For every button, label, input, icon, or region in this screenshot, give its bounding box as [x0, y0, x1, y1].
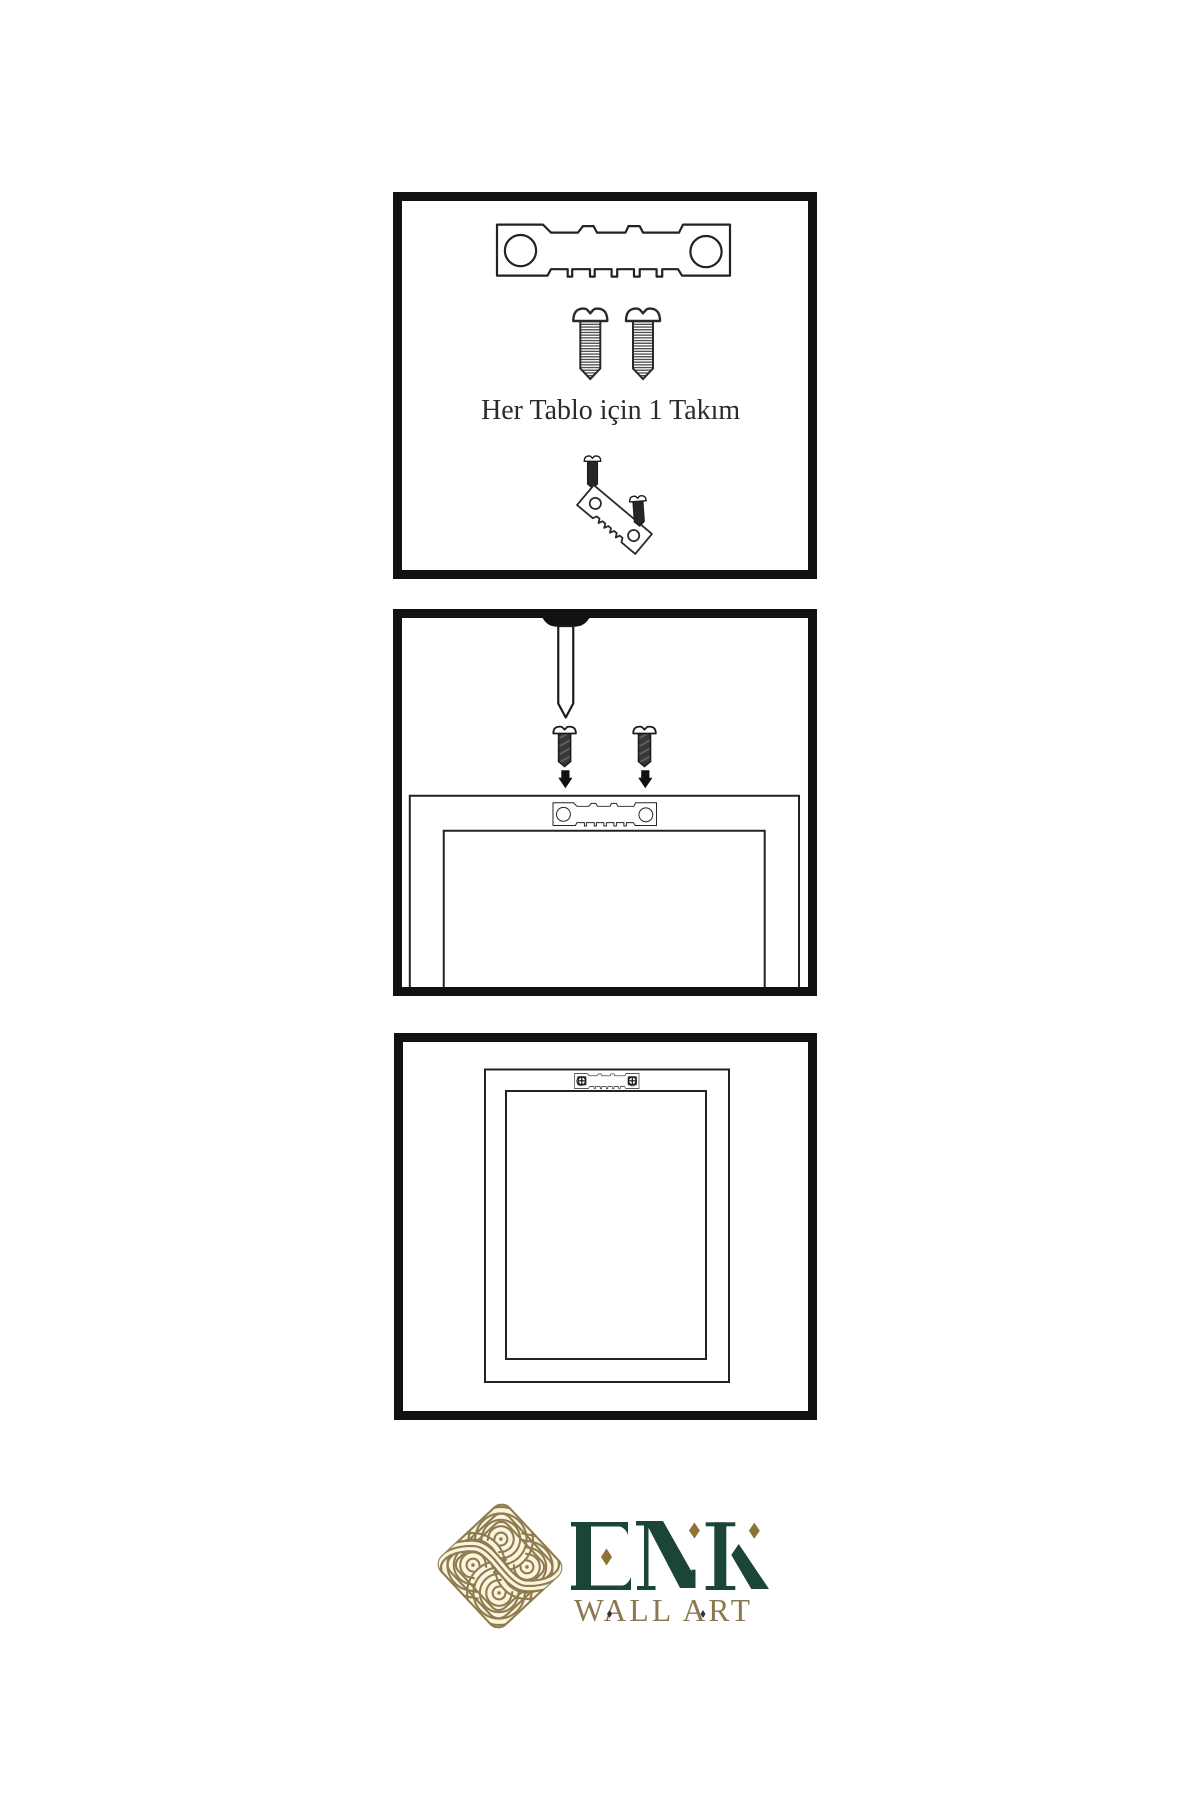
- svg-text:Her Tablo için 1 Takım: Her Tablo için 1 Takım: [481, 394, 740, 426]
- svg-text:WALL ART: WALL ART: [574, 1593, 753, 1628]
